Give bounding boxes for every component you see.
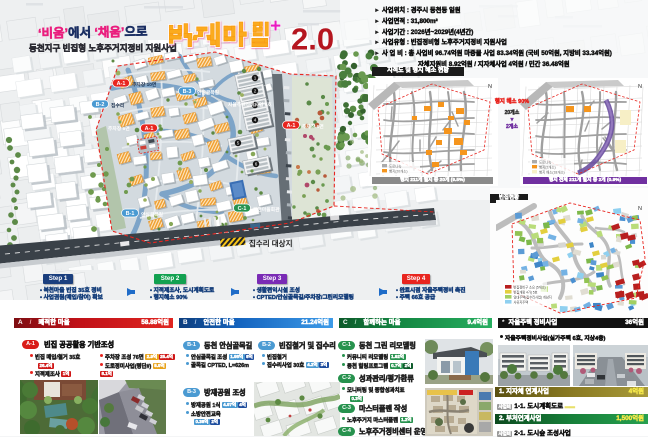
svg-text:6: 6 [255,162,258,167]
svg-text:집수리: 집수리 [111,102,124,109]
svg-text:A-1: A-1 [145,126,154,132]
svg-text:2.0: 2.0 [291,22,334,57]
svg-text:안심골목길: 안심골목길 [141,211,164,218]
svg-text:N: N [638,84,642,90]
svg-text:집수리 대상지: 집수리 대상지 [249,238,293,248]
svg-text:C-1: C-1 [238,206,247,212]
svg-text:자율주택정비사업 6호: 자율주택정비사업 6호 [228,101,272,108]
svg-text:A-1: A-1 [287,123,296,129]
svg-text:B-3: B-3 [183,89,192,95]
svg-text:N: N [488,84,492,90]
svg-text:주차장 6면: 주차장 6면 [302,123,324,130]
svg-text:안심골목길: 안심골목길 [197,89,220,96]
svg-text:임대주택(집수리사업) 개남지: 임대주택(집수리사업) 개남지 [514,294,552,299]
svg-text:4: 4 [254,118,257,123]
svg-text:B-1: B-1 [126,211,135,217]
svg-text:도로나눅: 도로나눅 [389,163,401,168]
svg-text:동천마을회관: 동천마을회관 [253,206,280,213]
svg-text:행지(2개소): 행지(2개소) [539,164,556,169]
svg-text:2: 2 [254,89,257,94]
svg-text:1: 1 [254,76,257,81]
svg-text:빈집정비구 소요 (5개소): 빈집정비구 소요 (5개소) [514,284,546,289]
svg-text:행지(20개소): 행지(20개소) [389,168,408,173]
svg-text:행지 해소(18개소): 행지 해소(18개소) [539,169,565,174]
svg-text:사유지주택: 사유지주택 [514,299,529,304]
svg-text:도로나눅: 도로나눅 [539,159,551,164]
svg-text:B-2: B-2 [96,102,105,108]
svg-text:N: N [638,206,642,212]
svg-text:5: 5 [237,141,240,146]
svg-text:+: + [270,16,281,37]
svg-text:A-1: A-1 [117,81,126,87]
svg-text:주차장 6면: 주차장 6면 [108,125,130,132]
svg-text:빈집개량 4가) 5호: 빈집개량 4가) 5호 [514,289,538,294]
svg-text:주차장 10면: 주차장 10면 [132,81,156,88]
